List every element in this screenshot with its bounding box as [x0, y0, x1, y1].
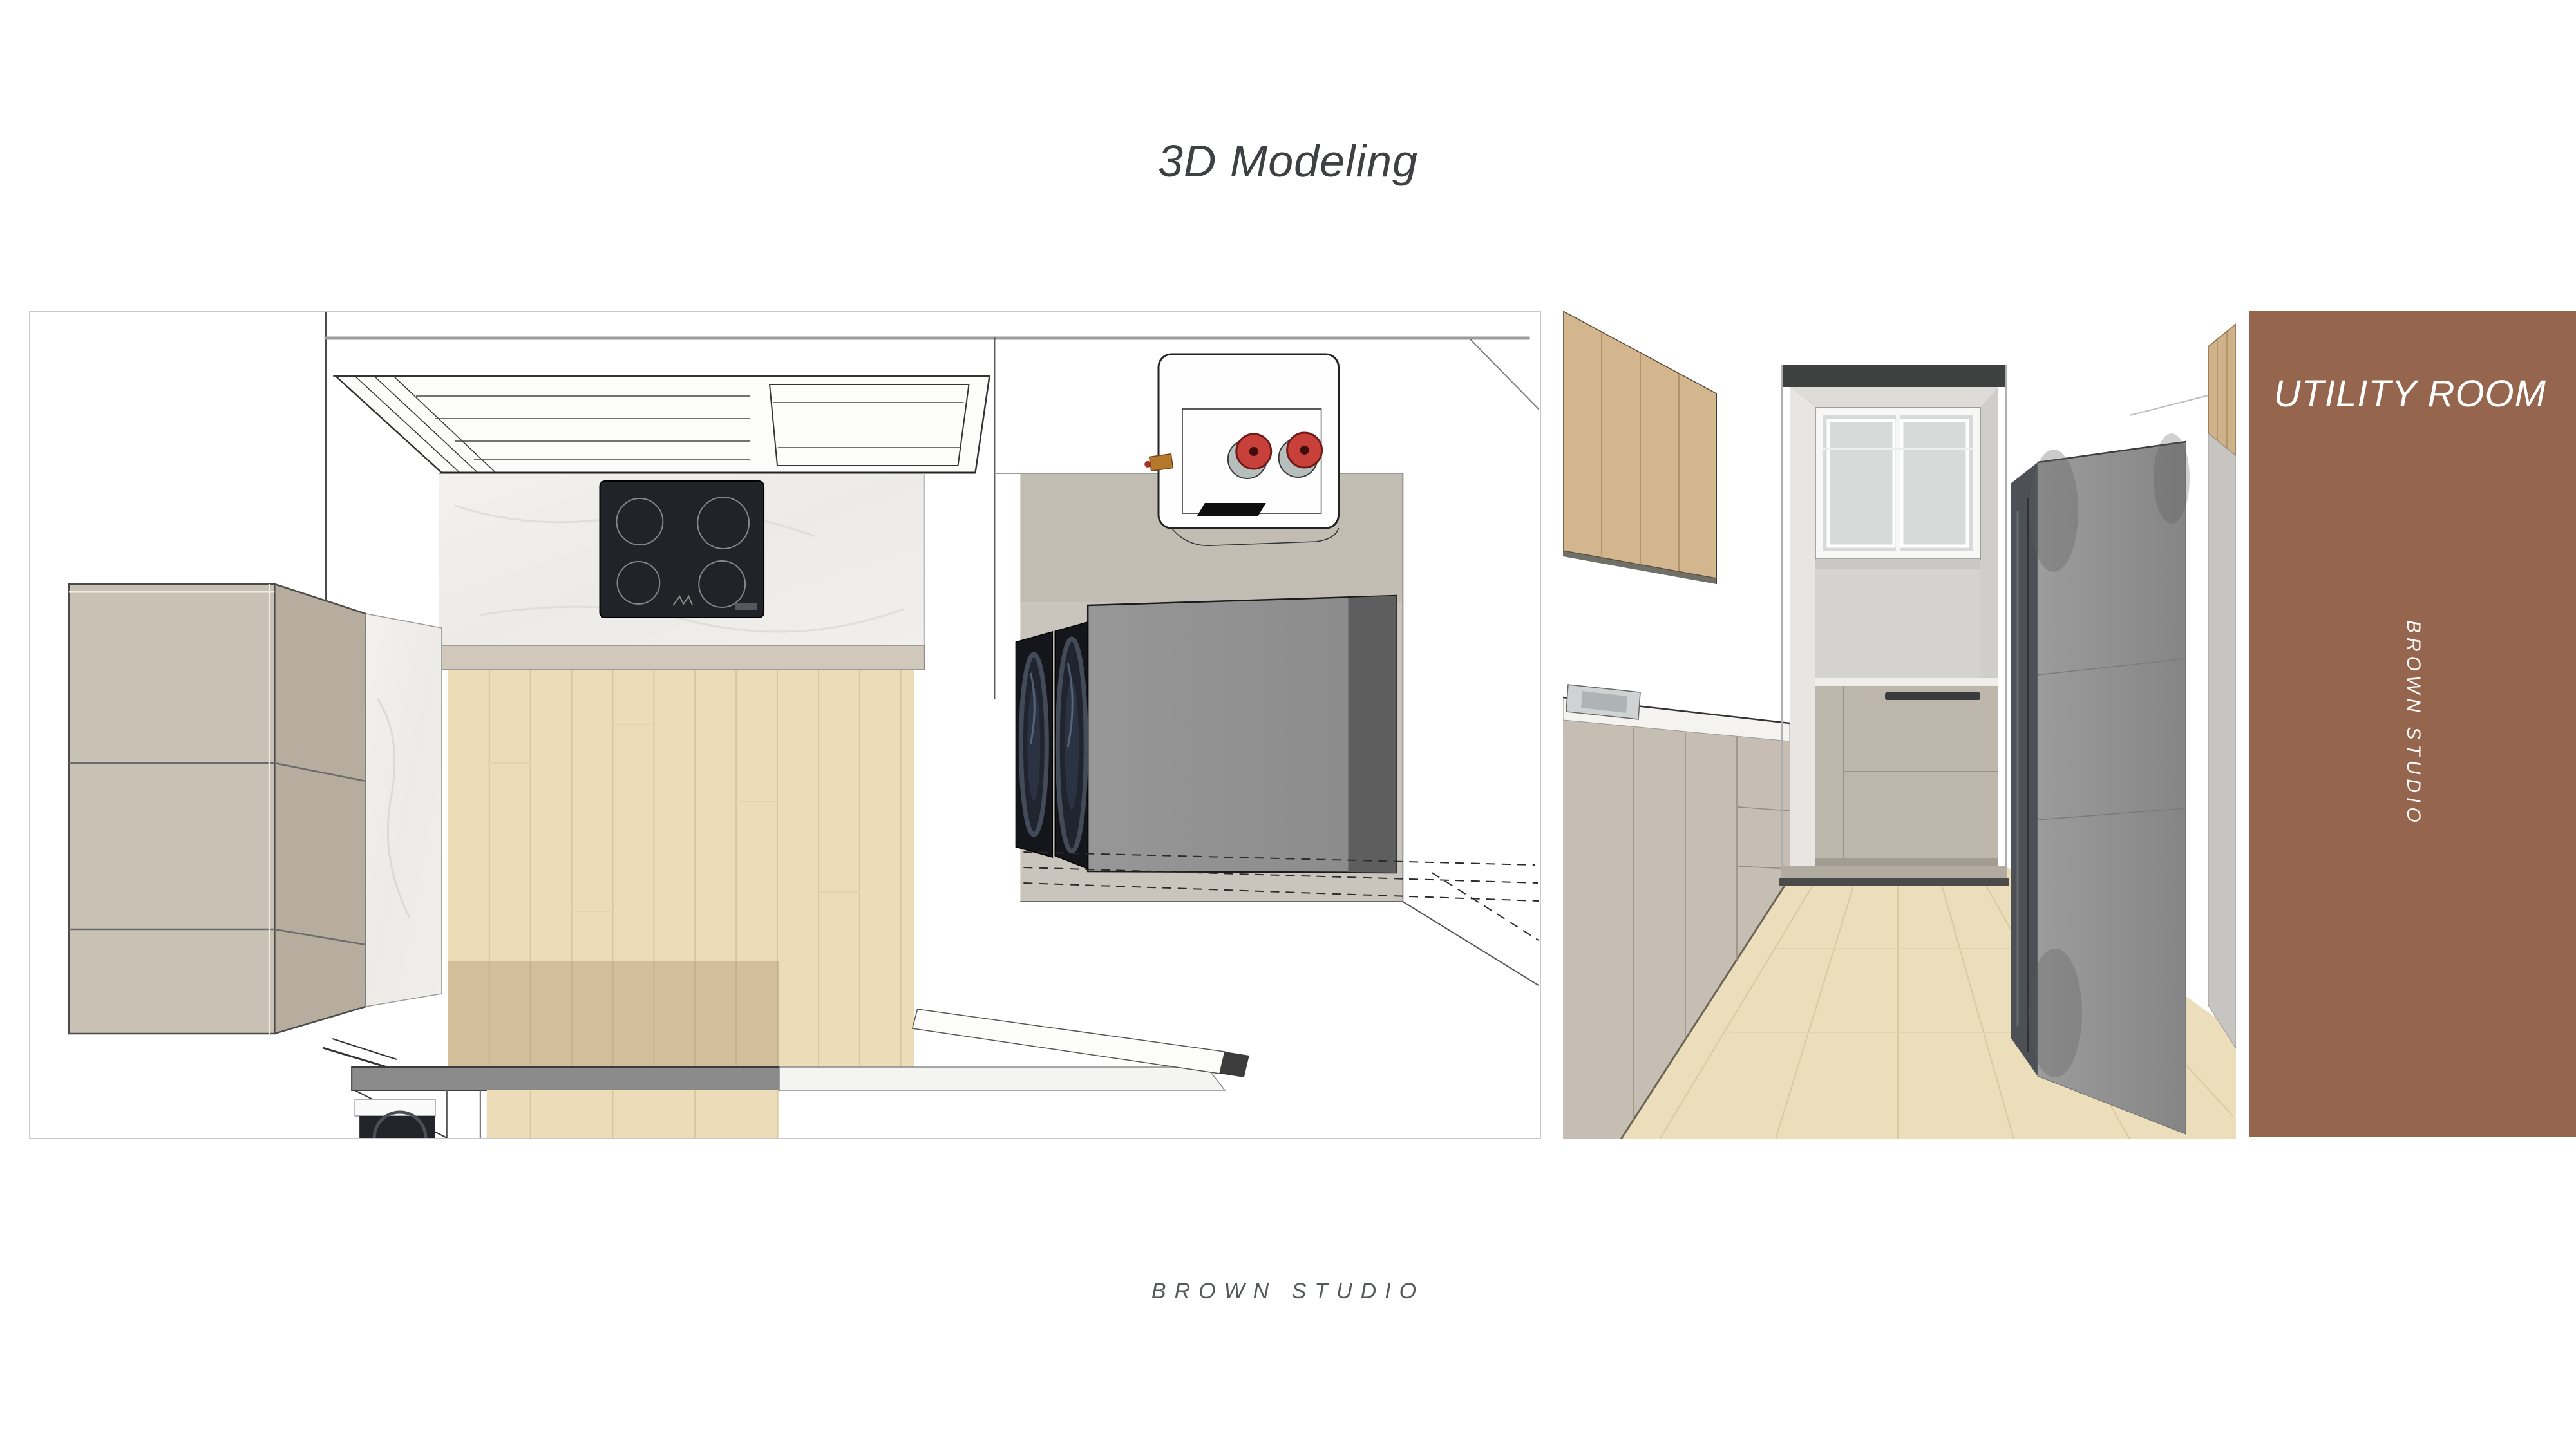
- tall-gray-unit: [2011, 433, 2190, 1134]
- front-load-washer: [359, 1112, 435, 1138]
- washer-dryer-top: [1016, 596, 1396, 873]
- perspective-view-drawing: [1563, 311, 2236, 1139]
- utility-base-cabinet: [1815, 678, 1998, 866]
- floor-shadow: [448, 961, 779, 1067]
- vent-slot: [1197, 503, 1266, 516]
- boiler-unit: [1144, 354, 1339, 545]
- studio-footer-label: BROWN STUDIO: [0, 1279, 2576, 1304]
- perspective-view-panel: [1563, 311, 2236, 1139]
- induction-cooktop: [600, 481, 764, 618]
- plan-view-panel: [29, 311, 1541, 1139]
- range-hood: [336, 376, 989, 473]
- plan-view-drawing: [30, 312, 1540, 1138]
- page-title: 3D Modeling: [0, 135, 2576, 187]
- window: [1815, 408, 1980, 569]
- studio-vertical-label: BROWN STUDIO: [2402, 620, 2424, 827]
- door-header: [1782, 365, 2006, 387]
- wood-floor: [448, 670, 914, 1067]
- threshold: [1782, 866, 2006, 878]
- utility-doorway: [1779, 365, 2009, 885]
- room-title: UTILITY ROOM: [2274, 372, 2546, 415]
- marble-side-panel: [366, 614, 442, 1007]
- drawer-handle: [1885, 692, 1980, 700]
- tall-cabinet: [69, 584, 366, 1034]
- utility-sidebar: UTILITY ROOM BROWN STUDIO: [2249, 311, 2576, 1137]
